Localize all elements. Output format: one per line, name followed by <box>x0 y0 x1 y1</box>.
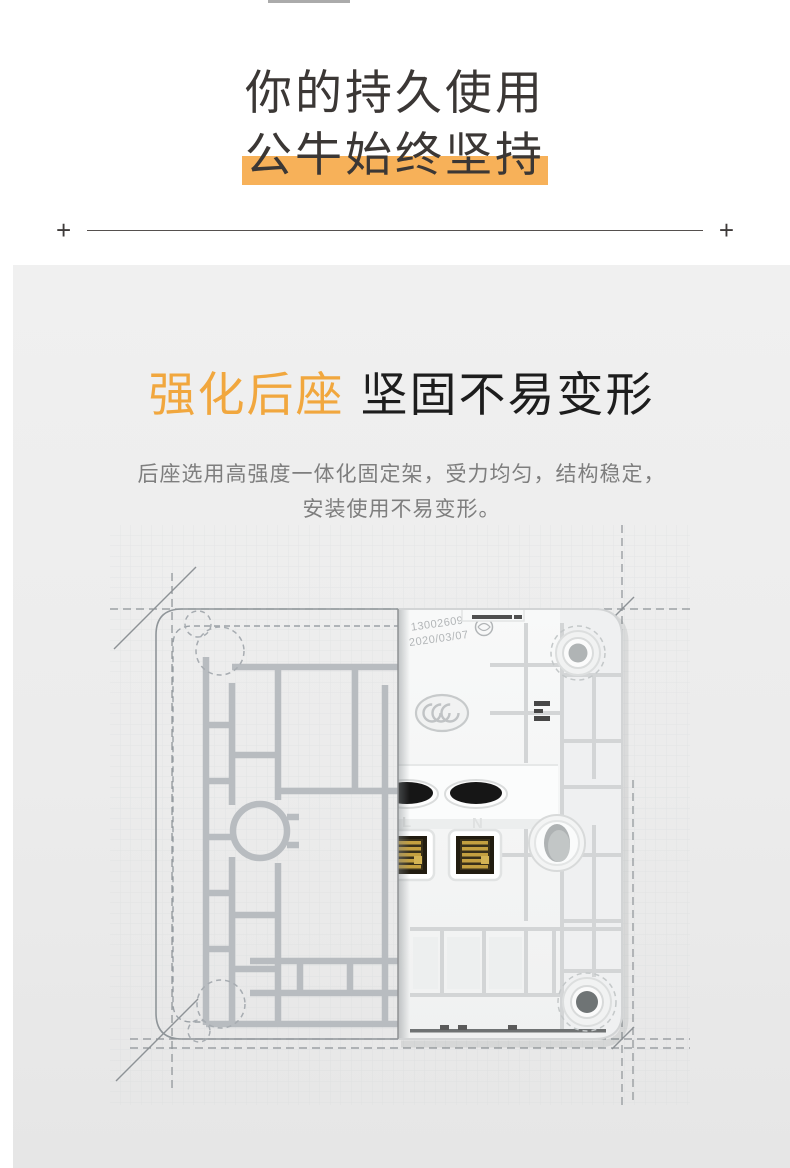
feature-desc-line-1: 后座选用高强度一体化固定架，受力均匀，结构稳定， <box>13 457 790 492</box>
top-edge-artifact <box>268 0 350 3</box>
section-divider: + + <box>0 216 790 244</box>
ccc-mark <box>416 695 468 731</box>
divider-plus-left: + <box>56 215 71 246</box>
socket-photo: 13002609 2020/03/07 <box>376 609 625 1044</box>
divider-rule <box>87 230 703 231</box>
top-tab <box>462 609 524 621</box>
feature-description: 后座选用高强度一体化固定架，受力均匀，结构稳定， 安装使用不易变形。 <box>13 457 790 527</box>
mounting-boss <box>529 815 585 871</box>
feature-desc-line-2: 安装使用不易变形。 <box>13 492 790 527</box>
screw-hole-bottom-right <box>563 978 611 1026</box>
feature-title-accent: 强化后座 <box>149 368 345 421</box>
socket-blueprint-photo: 13002609 2020/03/07 <box>110 525 690 1105</box>
divider-plus-right: + <box>719 215 734 246</box>
hero-section: 你的持久使用 公牛始终坚持 <box>0 0 790 180</box>
product-detail-page: 你的持久使用 公牛始终坚持 + + 强化后座坚固不易变形 后座选用高强度一体化固… <box>0 0 790 1168</box>
terminal-neutral <box>449 830 501 880</box>
screw-hole-top-right <box>556 631 600 675</box>
feature-title: 强化后座坚固不易变形 <box>13 265 790 423</box>
hero-line-2: 公牛始终坚持 <box>0 130 790 180</box>
feature-panel: 强化后座坚固不易变形 后座选用高强度一体化固定架，受力均匀，结构稳定， 安装使用… <box>13 265 790 1168</box>
wire-hole-neutral <box>450 782 502 804</box>
hero-line-2-text: 公牛始终坚持 <box>245 128 545 181</box>
socket-back-illustration: 13002609 2020/03/07 <box>110 525 690 1105</box>
hero-line-1: 你的持久使用 <box>0 68 790 118</box>
feature-title-main: 坚固不易变形 <box>361 368 655 421</box>
